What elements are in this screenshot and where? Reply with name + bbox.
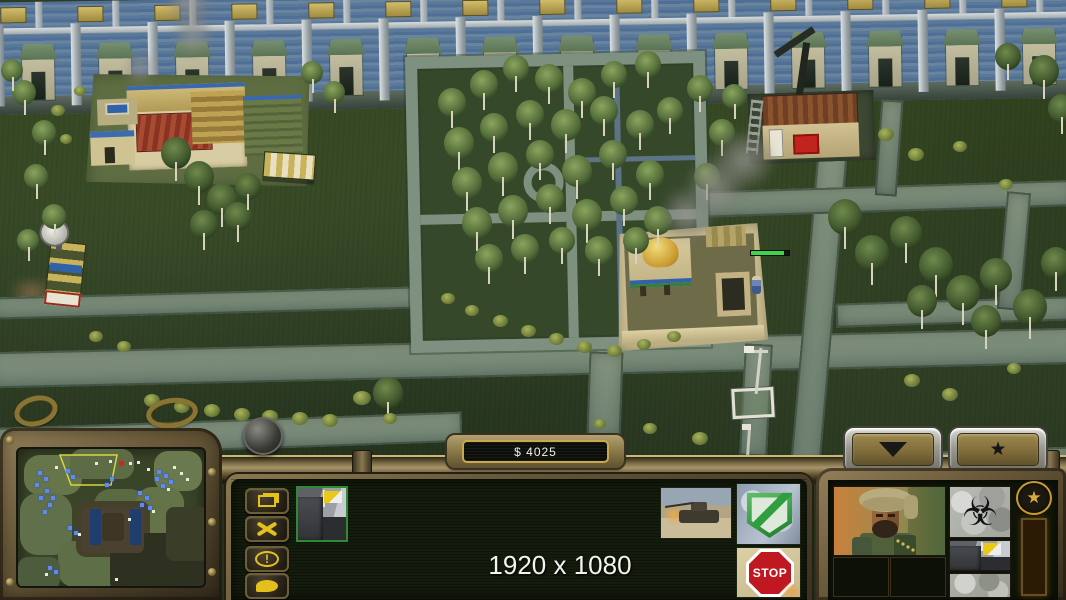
bush xyxy=(904,374,920,387)
minimap-friendly-blip xyxy=(35,483,39,487)
minimap[interactable] xyxy=(16,447,206,588)
resolution-overlay: 1920 x 1080 xyxy=(430,550,690,582)
camouflage-cameo[interactable] xyxy=(949,573,1011,598)
tank-body xyxy=(679,510,719,523)
exclamation-icon: ! xyxy=(255,551,279,567)
minimap-friendly-blip xyxy=(43,510,47,514)
chat-button[interactable] xyxy=(245,573,289,599)
rank-emblem: ★ xyxy=(1016,481,1052,515)
minimap-enemy-blip xyxy=(119,461,124,466)
bush xyxy=(353,391,371,405)
screw xyxy=(6,436,14,444)
tools-icon xyxy=(256,522,278,536)
minimap-neutral-blip xyxy=(152,510,155,513)
bush xyxy=(607,345,622,357)
alert-button[interactable]: ! xyxy=(245,546,289,572)
bush xyxy=(493,315,508,327)
empty-slot xyxy=(890,557,946,597)
hud-hinge-knob xyxy=(243,417,283,455)
minimap-neutral-blip xyxy=(186,478,189,481)
biohazard-icon: ☣ xyxy=(962,492,998,532)
minimap-neutral-blip xyxy=(180,472,183,475)
minimap-friendly-blip xyxy=(48,503,52,507)
screw xyxy=(208,518,216,526)
minimap-friendly-blip xyxy=(161,484,165,488)
collapse-hud-button[interactable] xyxy=(845,428,941,472)
bush xyxy=(117,341,131,352)
experience-bar xyxy=(1021,518,1047,596)
minimap-neutral-blip xyxy=(167,488,170,491)
options-button[interactable] xyxy=(245,516,289,542)
screw xyxy=(208,468,216,476)
minimap-neutral-blip xyxy=(45,573,48,576)
building-silhouette xyxy=(981,557,1010,570)
chevron-down-icon xyxy=(879,442,907,457)
bush xyxy=(292,412,308,425)
select-similar-button[interactable] xyxy=(245,488,289,514)
bush xyxy=(692,432,708,445)
building-silhouette xyxy=(950,546,981,570)
bush xyxy=(74,86,86,96)
bush xyxy=(1007,363,1021,374)
bush xyxy=(234,408,250,421)
minimap-friendly-blip xyxy=(110,477,114,481)
promotion-button-face: ★ ★ ★ xyxy=(957,433,1039,466)
stop-label: STOP xyxy=(753,566,787,580)
minimap-neutral-blip xyxy=(128,518,131,521)
money-display: $ 4025 xyxy=(462,440,609,463)
stop-command-button[interactable]: STOP xyxy=(736,547,801,598)
star-icon: ★ xyxy=(992,443,1004,456)
bush xyxy=(521,325,536,337)
bush xyxy=(549,333,564,345)
minimap-friendly-blip xyxy=(48,566,52,570)
speech-bubble-icon xyxy=(256,580,278,592)
bush xyxy=(465,305,479,316)
yellow-flag xyxy=(324,491,342,503)
screw xyxy=(208,568,216,576)
minimap-friendly-blip xyxy=(157,470,161,474)
unit-portrait[interactable] xyxy=(833,486,946,556)
minimap-friendly-blip xyxy=(54,570,58,574)
minimap-friendly-blip xyxy=(140,503,144,507)
rank-star-icon: ★ xyxy=(1026,488,1041,508)
bush xyxy=(577,341,592,353)
minimap-friendly-blip xyxy=(145,496,149,500)
windows-icon xyxy=(258,495,276,507)
soldier-portrait-image xyxy=(834,487,946,556)
building-silhouette xyxy=(298,497,323,540)
general-promotion-button[interactable]: ★ ★ ★ xyxy=(950,428,1046,472)
minimap-friendly-blip xyxy=(138,491,142,495)
building-silhouette xyxy=(323,517,346,540)
smoke-plume xyxy=(714,132,774,188)
screw xyxy=(6,578,14,586)
minimap-friendly-blip xyxy=(105,483,109,487)
minimap-neutral-blip xyxy=(109,460,112,463)
minimap-neutral-blip xyxy=(115,578,118,581)
screen: $ 4025 ★ ★ ★ xyxy=(0,0,1066,600)
minimap-friendly-blip xyxy=(66,469,70,473)
bush xyxy=(51,105,65,116)
building-flag-icon xyxy=(950,541,1010,570)
anthrax-upgrade-cameo[interactable]: ☣ xyxy=(949,486,1011,538)
tank-turret xyxy=(691,502,707,511)
bush xyxy=(942,388,958,401)
minimap-friendly-blip xyxy=(169,480,173,484)
minimap-friendly-blip xyxy=(38,471,42,475)
tank-cameo[interactable] xyxy=(660,487,732,539)
fire-effect xyxy=(782,585,801,598)
bush xyxy=(999,179,1013,190)
collapse-button-face xyxy=(852,433,934,466)
command-panel: ! xyxy=(226,474,812,600)
minimap-friendly-blip xyxy=(164,474,168,478)
bush xyxy=(643,423,657,434)
smoke-plume xyxy=(128,50,152,86)
minimap-friendly-blip xyxy=(155,477,159,481)
building-flag-icon xyxy=(298,488,346,540)
guard-mode-button[interactable] xyxy=(736,483,801,545)
bush xyxy=(60,134,72,144)
minimap-neutral-blip xyxy=(78,533,81,536)
minimap-friendly-blip xyxy=(71,475,75,479)
minimap-neutral-blip xyxy=(173,466,176,469)
bush xyxy=(878,128,894,141)
minimap-friendly-blip xyxy=(68,526,72,530)
bush xyxy=(637,339,651,350)
minimap-friendly-blip xyxy=(44,477,48,481)
selected-building-cameo[interactable] xyxy=(296,486,348,542)
minimap-neutral-blip xyxy=(95,462,98,465)
bush xyxy=(383,413,397,424)
bush xyxy=(594,419,606,429)
bush xyxy=(89,331,103,342)
empty-slot xyxy=(833,557,889,597)
bush xyxy=(667,331,681,342)
bush xyxy=(322,414,338,427)
minimap-neutral-blip xyxy=(147,468,150,471)
bush xyxy=(441,293,455,304)
minimap-neutral-blip xyxy=(55,466,58,469)
bush xyxy=(204,404,220,417)
bush xyxy=(908,148,924,161)
building-flag-cameo[interactable] xyxy=(949,540,1011,571)
bush xyxy=(953,141,967,152)
minimap-friendly-blip xyxy=(45,489,49,493)
minimap-neutral-blip xyxy=(129,462,132,465)
minimap-camera-frustum xyxy=(18,449,206,588)
minimap-neutral-blip xyxy=(137,461,140,464)
minimap-friendly-blip xyxy=(51,496,55,500)
minimap-friendly-blip xyxy=(39,496,43,500)
yellow-flag xyxy=(983,543,1001,555)
